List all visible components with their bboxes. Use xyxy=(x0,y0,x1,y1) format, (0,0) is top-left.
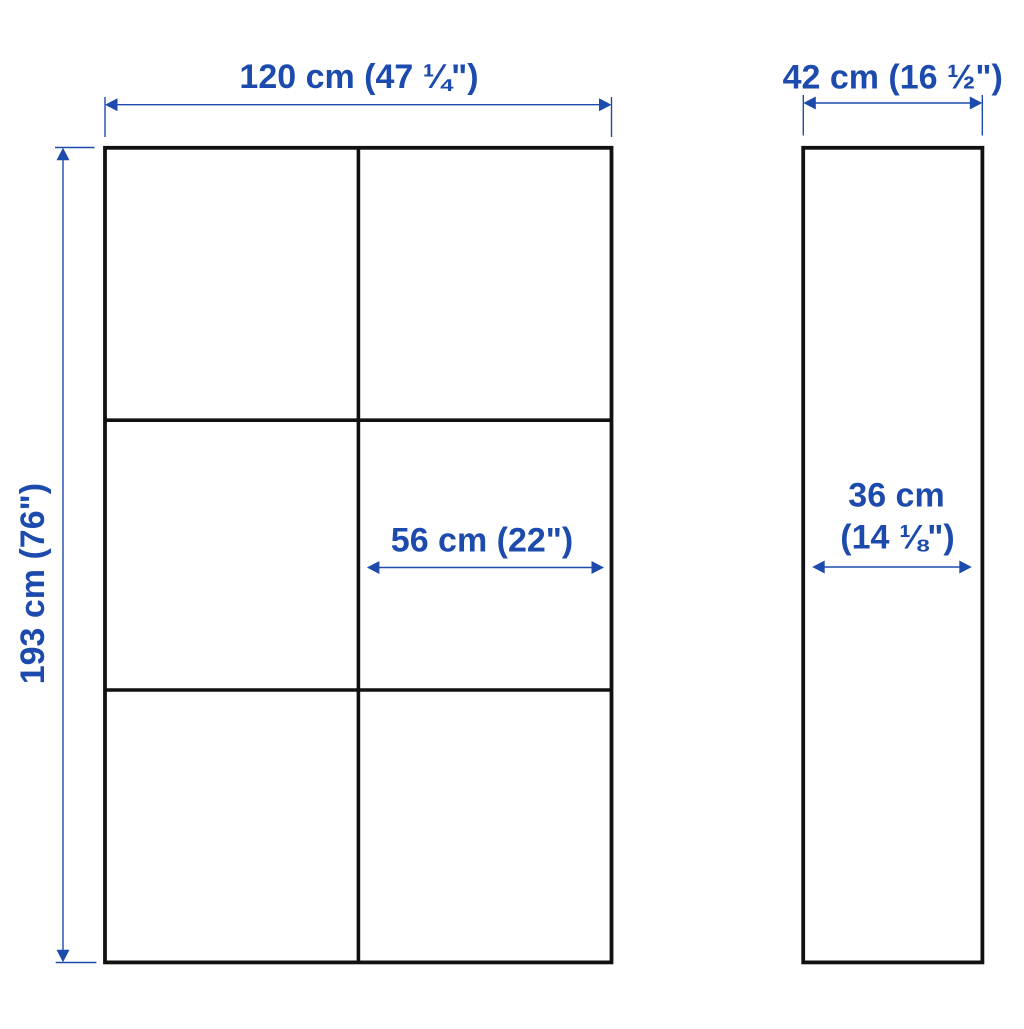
svg-text:120 cm (47 ¼"): 120 cm (47 ¼") xyxy=(239,58,478,96)
svg-text:36 cm: 36 cm xyxy=(848,477,944,515)
svg-text:56 cm (22"): 56 cm (22") xyxy=(391,522,573,560)
svg-text:193 cm (76"): 193 cm (76") xyxy=(14,483,52,684)
svg-text:42 cm (16 ½"): 42 cm (16 ½") xyxy=(783,59,1003,97)
svg-text:(14 ⅛"): (14 ⅛") xyxy=(840,518,954,556)
